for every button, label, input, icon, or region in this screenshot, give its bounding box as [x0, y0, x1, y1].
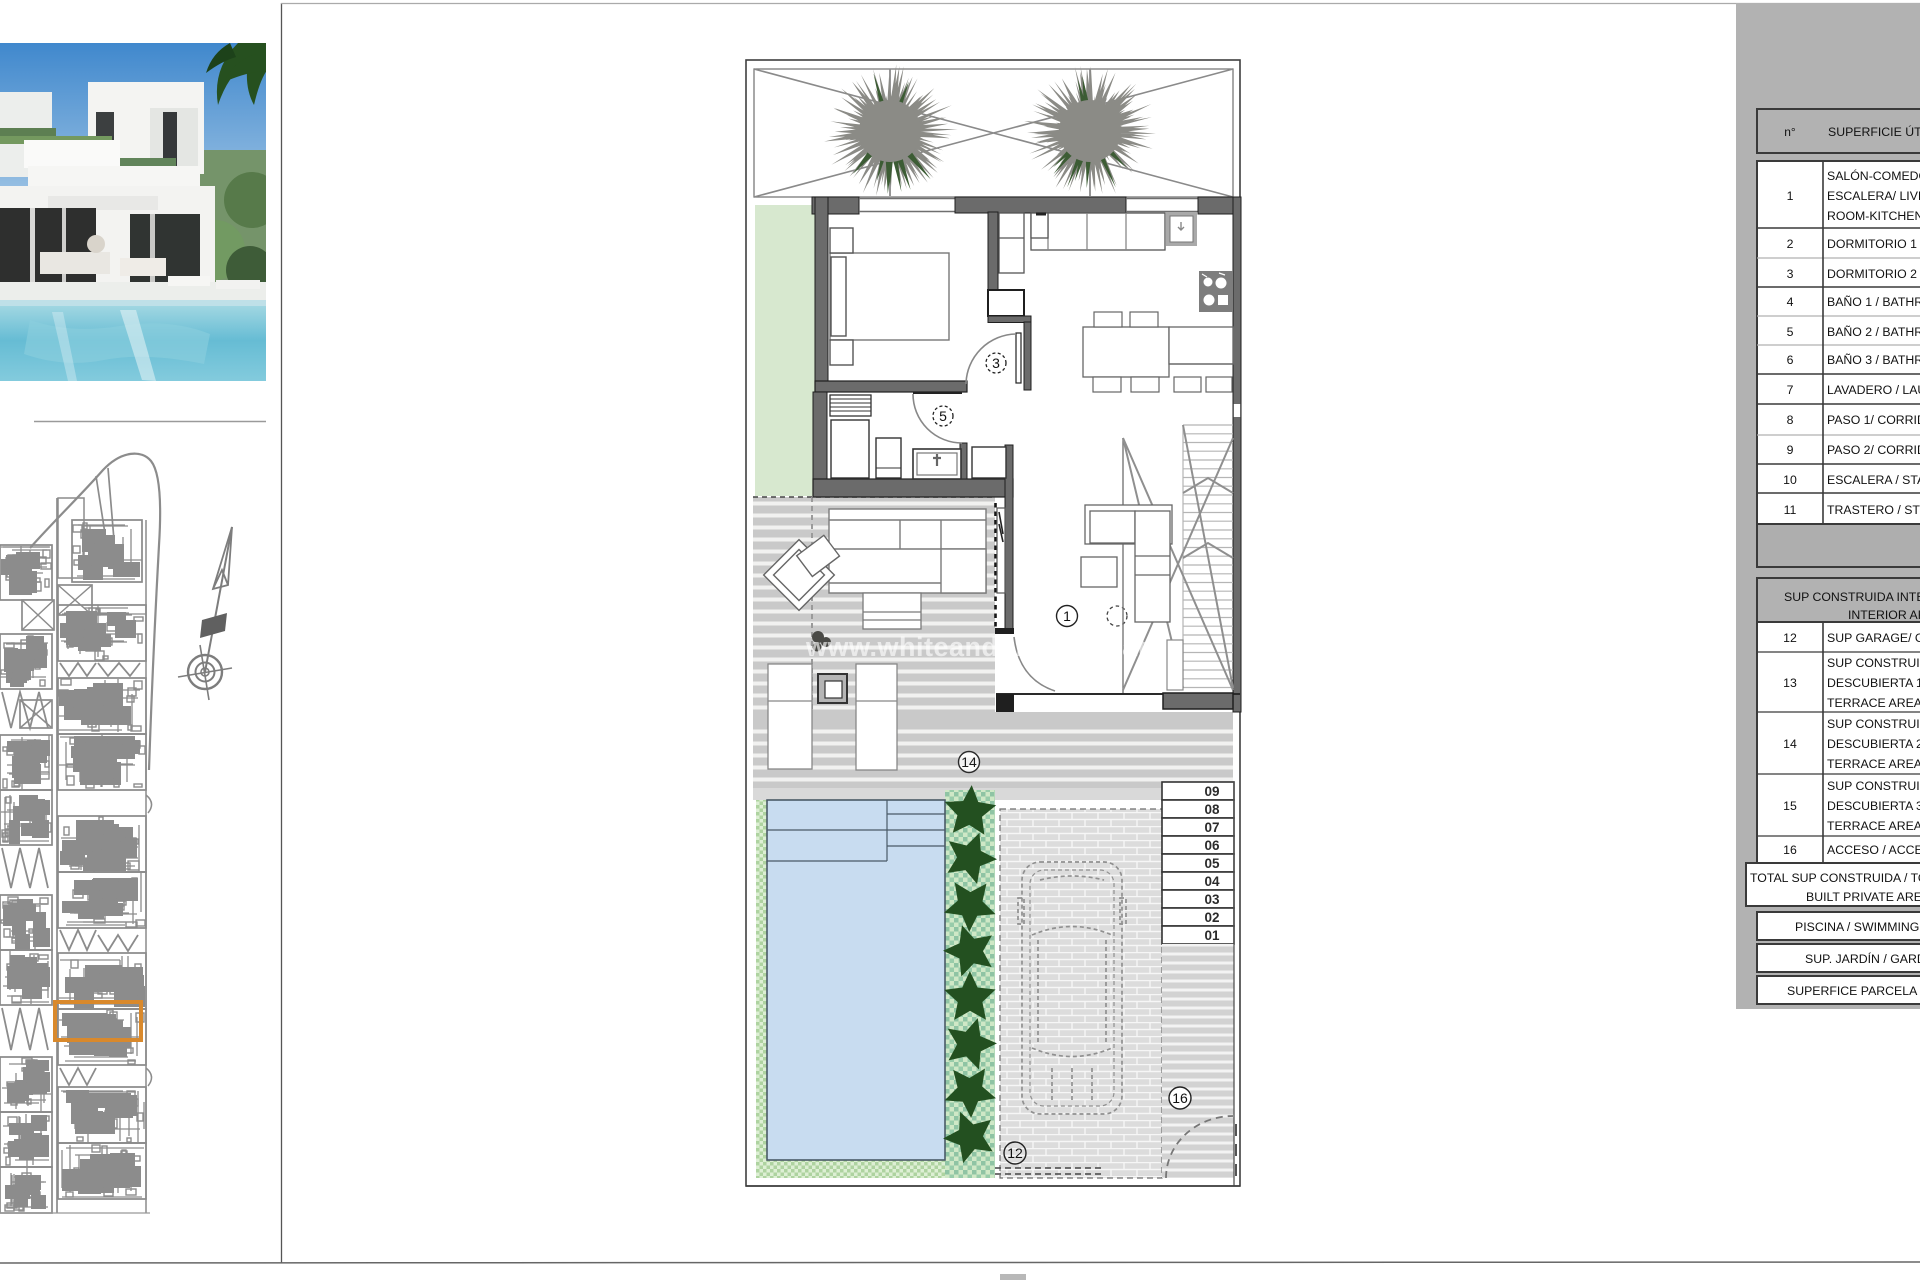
svg-text:5: 5 [939, 408, 947, 424]
svg-text:n°: n° [1784, 125, 1796, 139]
svg-text:16: 16 [1783, 843, 1797, 857]
svg-text:ACCESO / ACCESS: ACCESO / ACCESS [1827, 843, 1920, 857]
svg-text:10: 10 [1783, 473, 1797, 487]
svg-text:DESCUBIERTA 2 / OPEN: DESCUBIERTA 2 / OPEN [1827, 737, 1920, 751]
svg-text:SUPERFICE PARCELA / PLOT: SUPERFICE PARCELA / PLOT [1787, 984, 1920, 998]
svg-text:TERRACE AREA 1: TERRACE AREA 1 [1827, 696, 1920, 710]
svg-text:BAÑO 3 / BATHROOM 3: BAÑO 3 / BATHROOM 3 [1827, 353, 1920, 367]
svg-text:DORMITORIO 2 / BEDROOM 2: DORMITORIO 2 / BEDROOM 2 [1827, 267, 1920, 281]
svg-text:ESCALERA/ LIVING-DINING: ESCALERA/ LIVING-DINING [1827, 189, 1920, 203]
svg-text:6: 6 [1787, 353, 1794, 367]
svg-text:08: 08 [1204, 802, 1220, 817]
svg-text:TOTAL SUP CONSTRUIDA / TOTAL: TOTAL SUP CONSTRUIDA / TOTAL [1750, 871, 1920, 885]
svg-text:11: 11 [1784, 503, 1797, 517]
svg-text:TERRACE AREA 3: TERRACE AREA 3 [1827, 819, 1920, 833]
svg-text:5: 5 [1787, 325, 1794, 339]
svg-text:ESCALERA / STAIRS: ESCALERA / STAIRS [1827, 473, 1920, 487]
svg-text:05: 05 [1204, 856, 1220, 871]
svg-text:1: 1 [1787, 189, 1794, 203]
svg-text:SUP. JARDÍN / GARDEN: SUP. JARDÍN / GARDEN [1805, 951, 1920, 966]
svg-text:15: 15 [1783, 799, 1797, 813]
svg-text:SALÓN-COMEDOR-: SALÓN-COMEDOR- [1827, 168, 1920, 183]
svg-text:13: 13 [1783, 676, 1797, 690]
svg-text:09: 09 [1204, 784, 1219, 799]
svg-text:PASO 1/ CORRIDOR 1: PASO 1/ CORRIDOR 1 [1827, 413, 1920, 427]
svg-text:SUP CONSTRUIDA INTERIOR /: SUP CONSTRUIDA INTERIOR / [1784, 590, 1920, 604]
svg-text:03: 03 [1204, 892, 1220, 907]
svg-text:04: 04 [1204, 874, 1220, 889]
svg-text:2: 2 [1787, 237, 1794, 251]
svg-text:SUP CONSTRUIDA: SUP CONSTRUIDA [1827, 779, 1920, 793]
svg-text:DESCUBIERTA 1 / OPEN: DESCUBIERTA 1 / OPEN [1827, 676, 1920, 690]
svg-text:LAVADERO / LAUNDRY: LAVADERO / LAUNDRY [1827, 383, 1920, 397]
svg-text:BAÑO 1 / BATHROOM 1: BAÑO 1 / BATHROOM 1 [1827, 295, 1920, 309]
svg-text:07: 07 [1204, 820, 1219, 835]
svg-text:3: 3 [992, 355, 1000, 371]
svg-text:PISCINA / SWIMMING POOL: PISCINA / SWIMMING POOL [1795, 920, 1920, 934]
svg-text:DESCUBIERTA 3 / OPEN: DESCUBIERTA 3 / OPEN [1827, 799, 1920, 813]
svg-text:01: 01 [1204, 928, 1220, 943]
svg-text:02: 02 [1204, 910, 1219, 925]
svg-text:TRASTERO / STORAGE: TRASTERO / STORAGE [1827, 503, 1920, 517]
svg-text:14: 14 [961, 754, 977, 770]
svg-text:7: 7 [1787, 383, 1794, 397]
svg-text:4: 4 [1787, 295, 1794, 309]
svg-text:INTERIOR AREA: INTERIOR AREA [1848, 608, 1920, 622]
svg-text:9: 9 [1787, 443, 1794, 457]
svg-text:12: 12 [1007, 1145, 1023, 1161]
svg-text:SUP CONSTRUIDA: SUP CONSTRUIDA [1827, 656, 1920, 670]
svg-text:16: 16 [1172, 1090, 1188, 1106]
svg-text:12: 12 [1783, 631, 1797, 645]
svg-text:3: 3 [1787, 267, 1794, 281]
svg-text:www.whiteandgilrealestate: www.whiteandgilrealestate [805, 632, 1163, 662]
svg-text:06: 06 [1204, 838, 1220, 853]
svg-text:PASO 2/ CORRIDOR 2: PASO 2/ CORRIDOR 2 [1827, 443, 1920, 457]
svg-text:DORMITORIO 1 / BEDROOM 1: DORMITORIO 1 / BEDROOM 1 [1827, 237, 1920, 251]
svg-text:BAÑO 2 / BATHROOM 2: BAÑO 2 / BATHROOM 2 [1827, 325, 1920, 339]
svg-text:1: 1 [1063, 608, 1071, 624]
svg-text:14: 14 [1783, 737, 1797, 751]
svg-text:BUILT PRIVATE AREA: BUILT PRIVATE AREA [1806, 890, 1920, 904]
svg-text:SUPERFICIE ÚTIL / USEFUL AREA: SUPERFICIE ÚTIL / USEFUL AREA [1828, 124, 1920, 139]
svg-text:ROOM-KITCHEN-STAIRS: ROOM-KITCHEN-STAIRS [1827, 209, 1920, 223]
svg-text:SUP GARAGE/ GARAGE AREA: SUP GARAGE/ GARAGE AREA [1827, 631, 1920, 645]
svg-text:TERRACE AREA 2: TERRACE AREA 2 [1827, 757, 1920, 771]
svg-text:8: 8 [1787, 413, 1794, 427]
svg-text:SUP CONSTRUIDA: SUP CONSTRUIDA [1827, 717, 1920, 731]
